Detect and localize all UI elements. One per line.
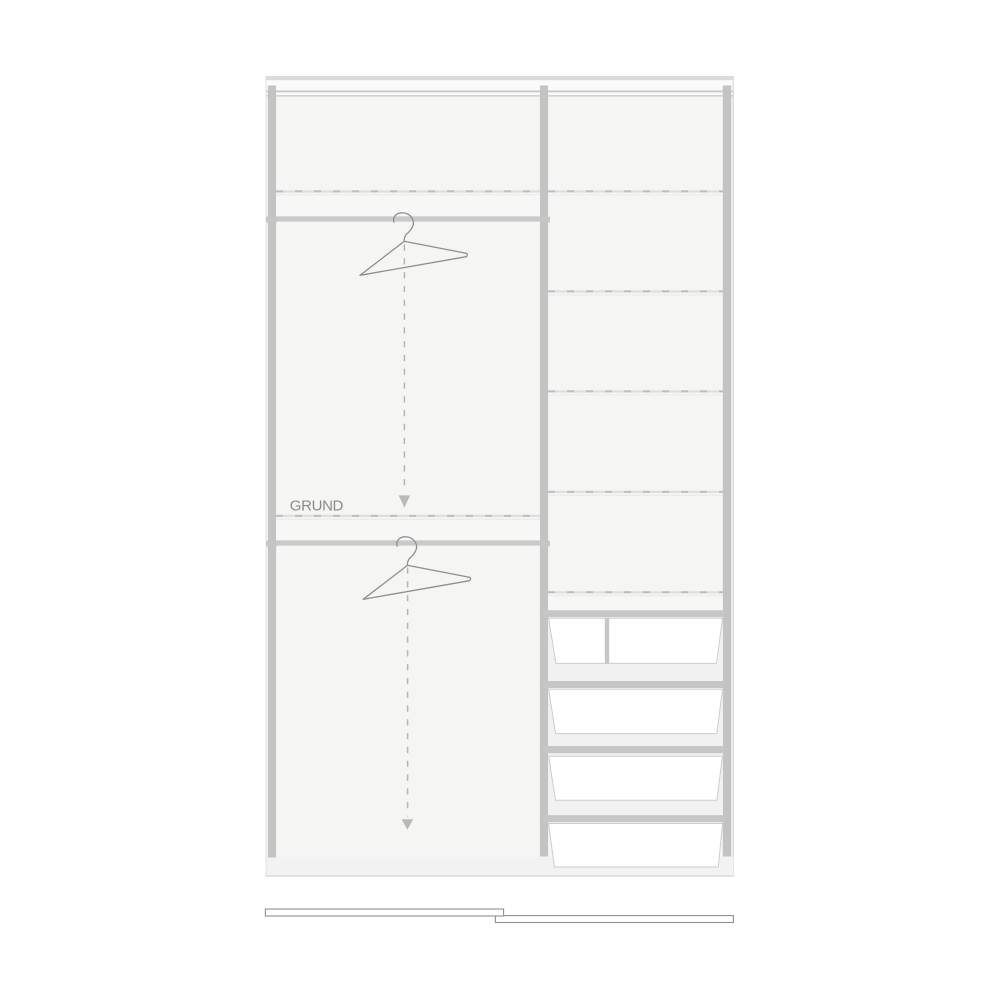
svg-text:GRUND: GRUND xyxy=(290,497,344,514)
